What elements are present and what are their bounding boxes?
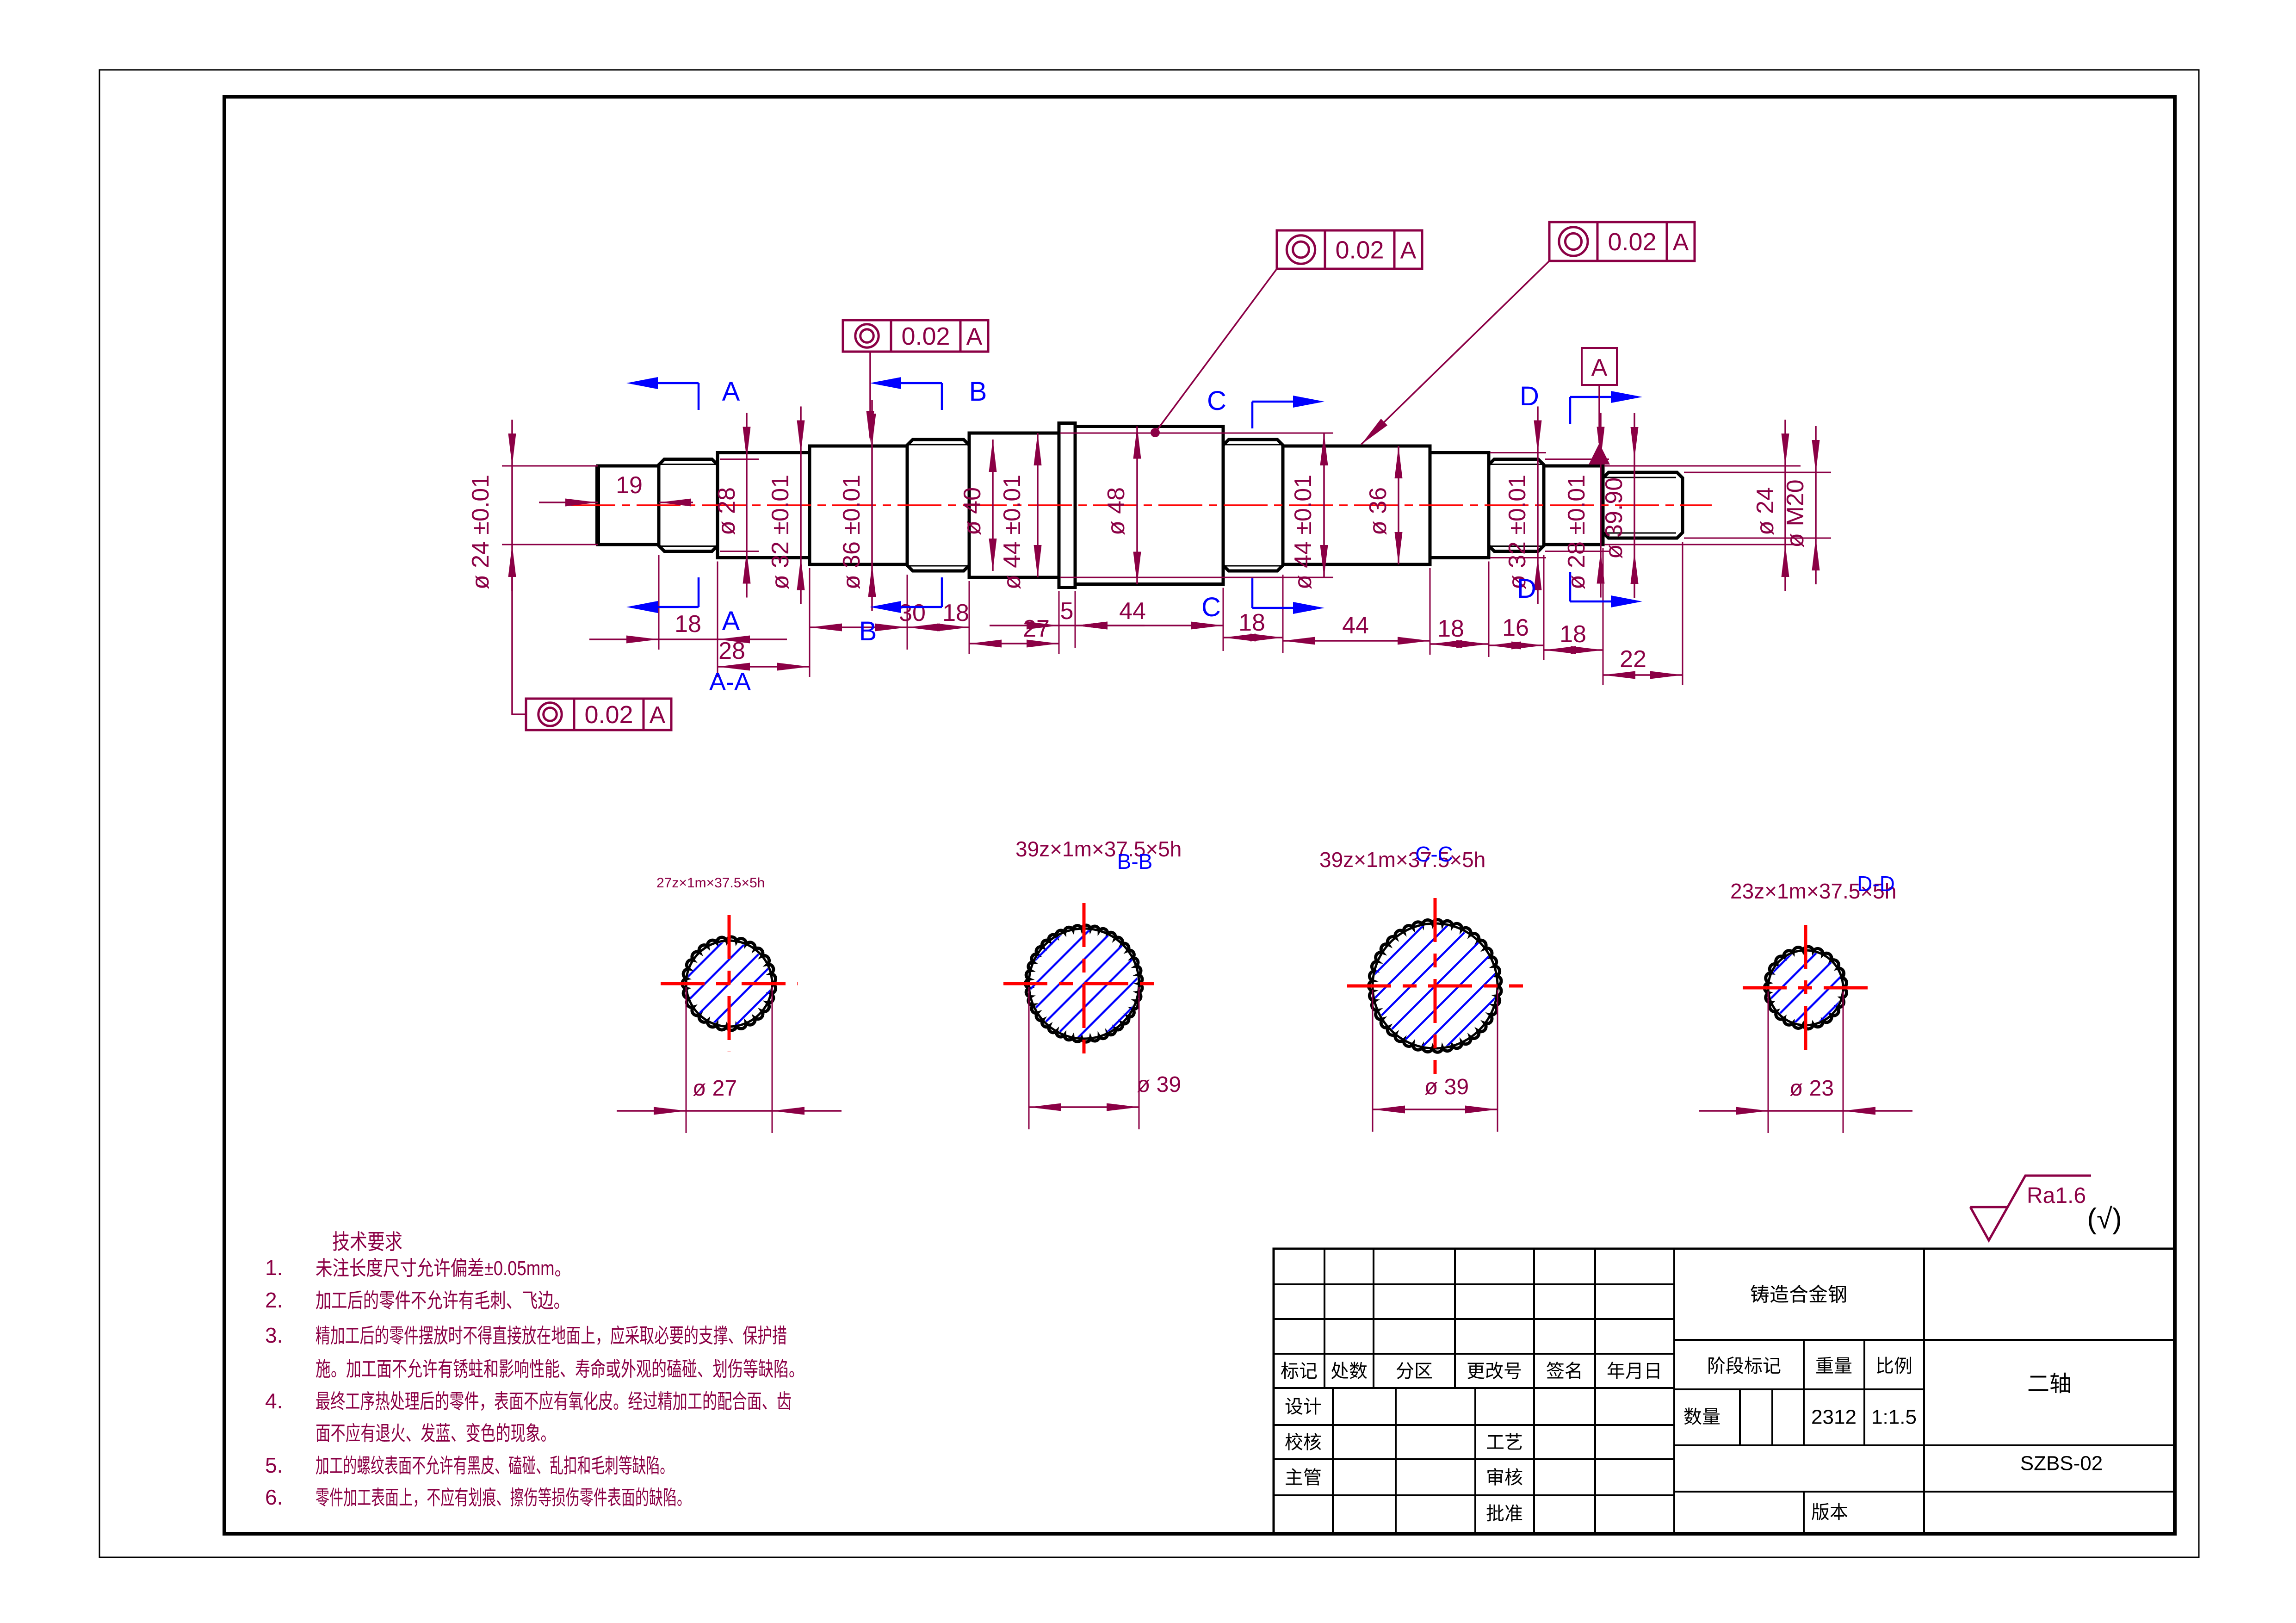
svg-text:A: A [1400, 237, 1417, 264]
svg-text:0.02: 0.02 [901, 322, 950, 350]
svg-text:27z×1m×37.5×5h: 27z×1m×37.5×5h [656, 875, 765, 891]
svg-text:18: 18 [942, 600, 969, 626]
svg-text:18: 18 [1437, 615, 1464, 642]
svg-text:技术要求: 技术要求 [332, 1230, 402, 1254]
svg-text:批准: 批准 [1486, 1504, 1523, 1524]
svg-text:1:1.5: 1:1.5 [1871, 1406, 1917, 1428]
svg-text:A: A [1673, 229, 1689, 256]
svg-text:C: C [1207, 386, 1226, 416]
svg-text:SZBS-02: SZBS-02 [2020, 1452, 2103, 1474]
svg-text:铸造合金钢: 铸造合金钢 [1750, 1284, 1847, 1306]
svg-text:ø 23: ø 23 [1789, 1076, 1834, 1101]
svg-text:审核: 审核 [1486, 1468, 1523, 1488]
svg-text:校核: 校核 [1285, 1432, 1322, 1453]
svg-text:数量: 数量 [1683, 1407, 1720, 1427]
svg-text:加工的螺纹表面不允许有黑皮、磕碰、乱扣和毛刺等缺陷。: 加工的螺纹表面不允许有黑皮、磕碰、乱扣和毛刺等缺陷。 [316, 1455, 674, 1477]
svg-text:标记: 标记 [1281, 1361, 1318, 1381]
svg-text:18: 18 [1560, 621, 1586, 648]
svg-text:16: 16 [1502, 614, 1529, 641]
svg-text:ø 36 ±0.01: ø 36 ±0.01 [838, 475, 865, 589]
svg-text:ø 40: ø 40 [959, 487, 986, 535]
svg-text:B: B [969, 377, 987, 407]
svg-text:ø 39: ø 39 [1137, 1072, 1181, 1097]
svg-text:0.02: 0.02 [1335, 236, 1384, 264]
svg-text:ø 24: ø 24 [1752, 487, 1779, 535]
svg-text:6.: 6. [265, 1485, 283, 1509]
svg-text:精加工后的零件摆放时不得直接放在地面上，应采取必要的支撑、保: 精加工后的零件摆放时不得直接放在地面上，应采取必要的支撑、保护措 [316, 1325, 787, 1347]
svg-text:更改号: 更改号 [1467, 1361, 1522, 1381]
svg-text:未注长度尺寸允许偏差±0.05mm。: 未注长度尺寸允许偏差±0.05mm。 [316, 1257, 571, 1280]
svg-text:阶段标记: 阶段标记 [1707, 1356, 1781, 1376]
svg-text:A-A: A-A [709, 668, 751, 696]
svg-text:施。加工面不允许有锈蛀和影响性能、寿命或外观的磕碰、划伤等缺: 施。加工面不允许有锈蛀和影响性能、寿命或外观的磕碰、划伤等缺陷。 [316, 1358, 804, 1381]
svg-text:加工后的零件不允许有毛刺、飞边。: 加工后的零件不允许有毛刺、飞边。 [316, 1289, 569, 1312]
svg-text:ø 44 ±0.01: ø 44 ±0.01 [999, 475, 1026, 589]
svg-text:D: D [1520, 381, 1539, 411]
svg-text:工艺: 工艺 [1486, 1432, 1523, 1453]
svg-text:ø 39: ø 39 [1424, 1075, 1469, 1099]
svg-text:1.: 1. [265, 1256, 283, 1280]
svg-text:28: 28 [718, 638, 745, 664]
svg-text:0.02: 0.02 [584, 701, 633, 729]
svg-text:5: 5 [1060, 598, 1074, 625]
svg-text:设计: 设计 [1285, 1397, 1322, 1417]
svg-text:ø 44 ±0.01: ø 44 ±0.01 [1290, 475, 1317, 589]
svg-text:3.: 3. [265, 1323, 283, 1347]
svg-text:处数: 处数 [1331, 1361, 1368, 1381]
svg-text:ø 28 ±0.01: ø 28 ±0.01 [1563, 475, 1590, 589]
svg-text:D: D [1517, 574, 1536, 604]
svg-text:4.: 4. [265, 1389, 283, 1413]
svg-text:B: B [859, 616, 877, 646]
svg-text:比例: 比例 [1875, 1356, 1912, 1376]
svg-text:A: A [1591, 354, 1608, 381]
svg-text:Ra1.6: Ra1.6 [2027, 1183, 2086, 1208]
svg-text:面不应有退火、发蓝、变色的现象。: 面不应有退火、发蓝、变色的现象。 [316, 1422, 556, 1445]
svg-text:5.: 5. [265, 1453, 283, 1477]
svg-text:ø 39.90: ø 39.90 [1601, 477, 1628, 559]
svg-text:C: C [1201, 592, 1221, 622]
svg-text:18: 18 [675, 611, 701, 638]
svg-text:ø 36: ø 36 [1365, 487, 1392, 535]
svg-text:0.02: 0.02 [1608, 228, 1656, 256]
svg-text:零件加工表面上，不应有划痕、擦伤等损伤零件表面的缺陷。: 零件加工表面上，不应有划痕、擦伤等损伤零件表面的缺陷。 [316, 1487, 691, 1509]
svg-text:18: 18 [1238, 609, 1265, 636]
svg-text:22: 22 [1620, 646, 1646, 673]
svg-text:ø 48: ø 48 [1103, 487, 1130, 535]
svg-text:39z×1m×37.5×5h: 39z×1m×37.5×5h [1319, 848, 1485, 872]
svg-text:A: A [650, 702, 666, 729]
svg-text:最终工序热处理后的零件，表面不应有氧化皮。经过精加工的配合面: 最终工序热处理后的零件，表面不应有氧化皮。经过精加工的配合面、齿 [316, 1390, 792, 1413]
svg-text:A: A [722, 606, 740, 636]
svg-text:44: 44 [1119, 598, 1146, 625]
svg-text:签名: 签名 [1546, 1361, 1583, 1381]
svg-text:44: 44 [1342, 612, 1369, 639]
svg-text:分区: 分区 [1396, 1361, 1433, 1381]
svg-text:2.: 2. [265, 1288, 283, 1312]
svg-text:30: 30 [899, 600, 926, 626]
svg-text:39z×1m×37.5×5h: 39z×1m×37.5×5h [1015, 837, 1182, 861]
svg-text:版本: 版本 [1811, 1502, 1848, 1523]
svg-text:年月日: 年月日 [1607, 1361, 1662, 1381]
svg-text:D-D: D-D [1857, 872, 1895, 896]
svg-text:2312: 2312 [1811, 1406, 1857, 1428]
svg-text:ø 28: ø 28 [713, 487, 740, 535]
svg-text:主管: 主管 [1285, 1468, 1322, 1488]
svg-text:ø M20: ø M20 [1782, 479, 1809, 547]
svg-text:ø 32 ±0.01: ø 32 ±0.01 [1504, 475, 1531, 589]
svg-text:ø 24 ±0.01: ø 24 ±0.01 [467, 475, 494, 589]
svg-text:B-B: B-B [1117, 849, 1153, 873]
svg-text:ø 27: ø 27 [693, 1076, 737, 1101]
svg-text:重量: 重量 [1815, 1356, 1852, 1376]
svg-text:19: 19 [616, 472, 643, 499]
svg-text:C-C: C-C [1415, 842, 1453, 866]
svg-text:二轴: 二轴 [2027, 1372, 2072, 1396]
svg-text:A: A [966, 323, 983, 350]
svg-text:ø 32 ±0.01: ø 32 ±0.01 [767, 475, 794, 589]
svg-text:(√): (√) [2087, 1203, 2122, 1235]
svg-text:A: A [722, 377, 740, 407]
